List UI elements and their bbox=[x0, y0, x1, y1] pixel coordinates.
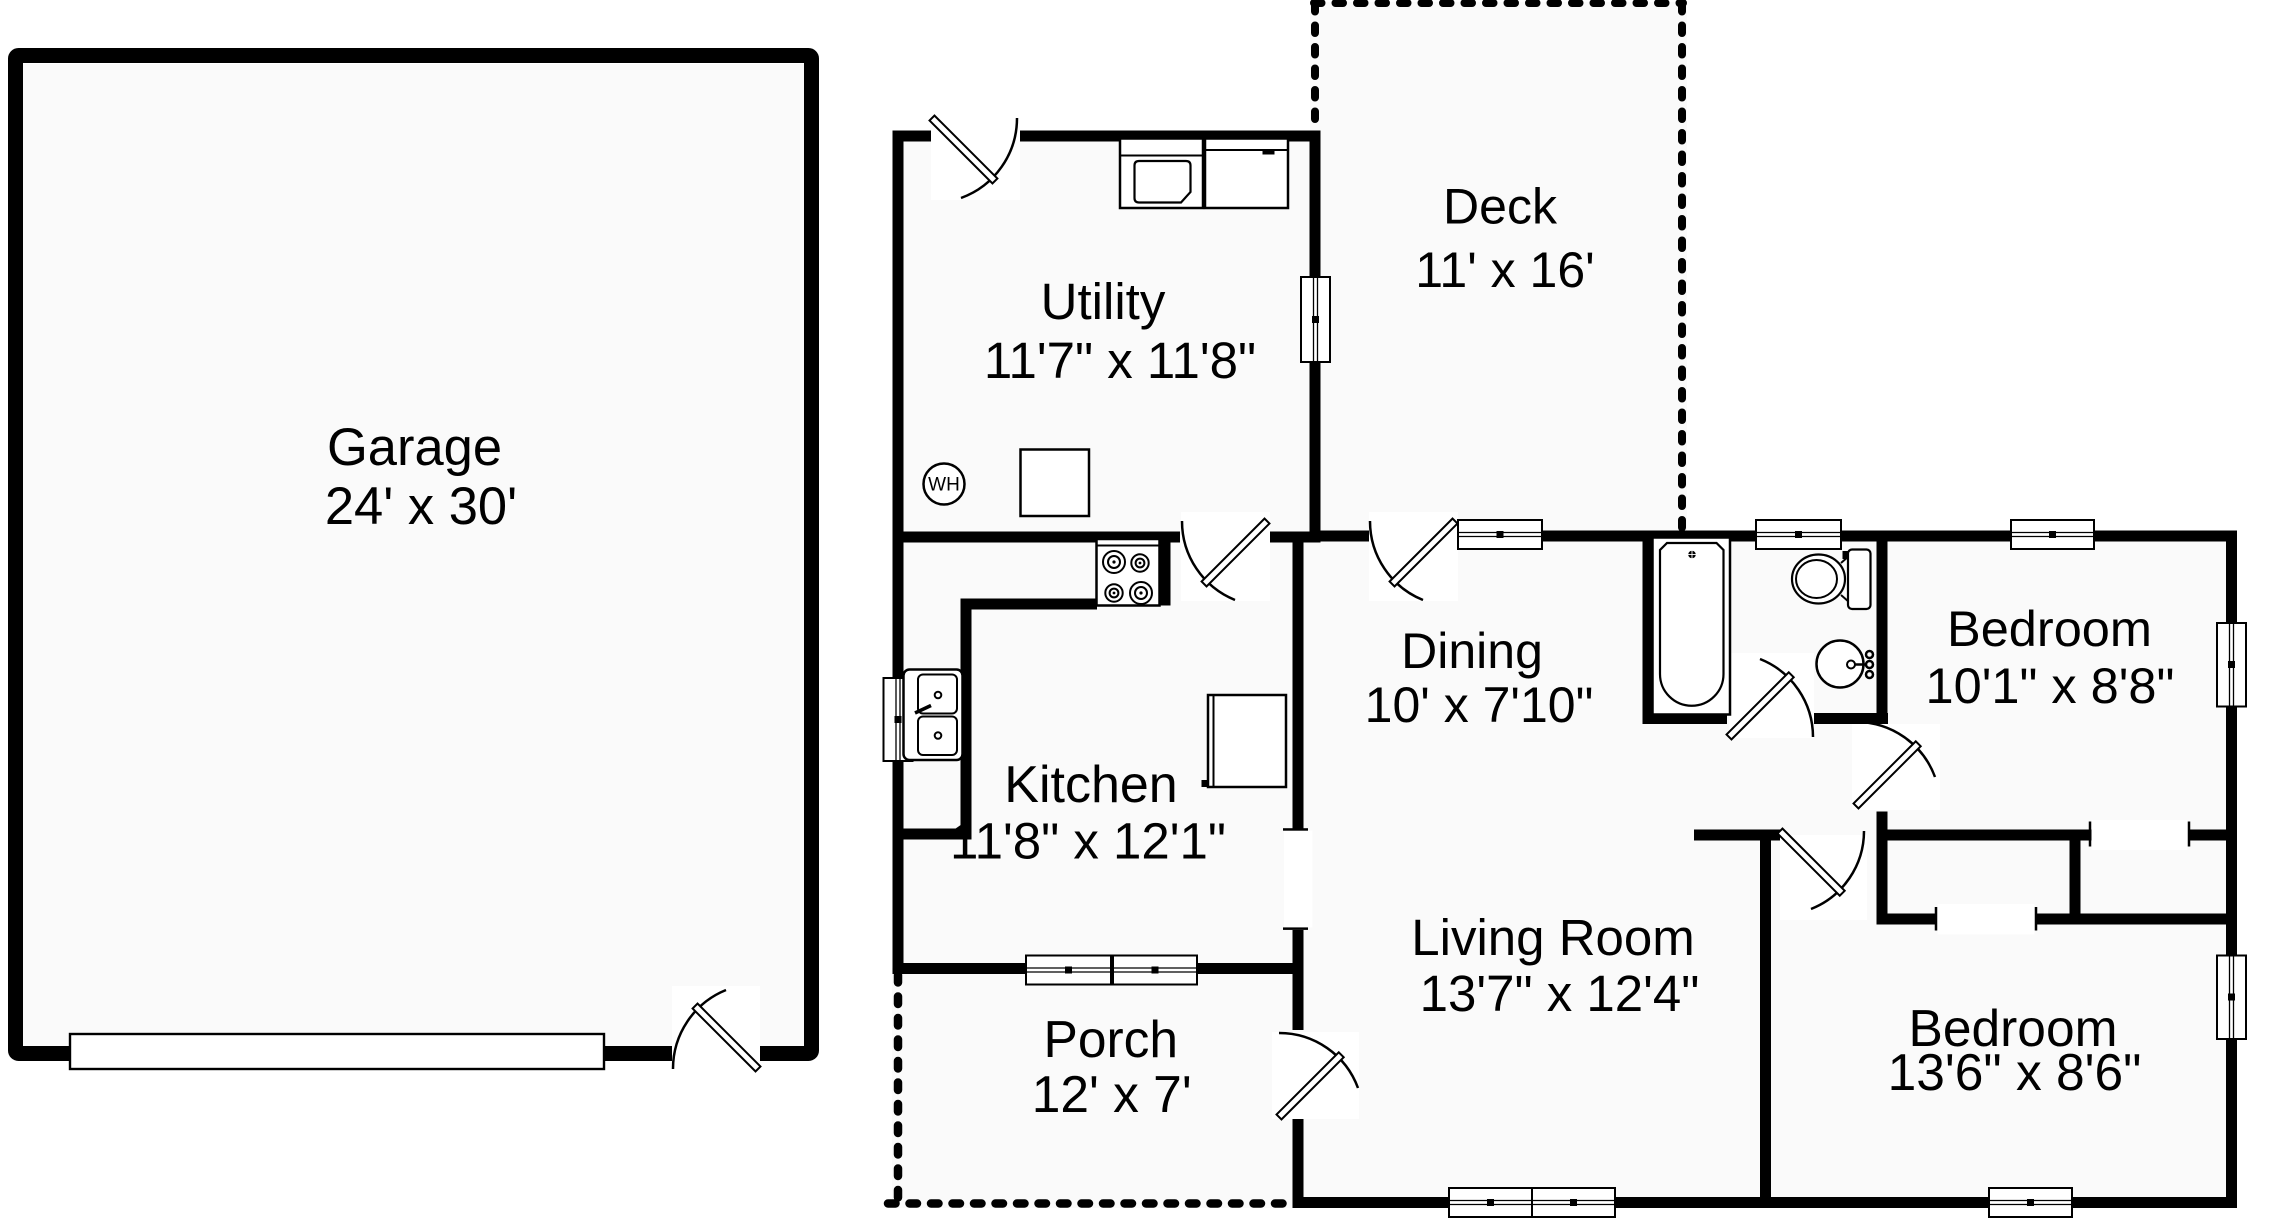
svg-text:10' x 7'10": 10' x 7'10" bbox=[1365, 677, 1594, 733]
svg-text:11'8" x 12'1": 11'8" x 12'1" bbox=[950, 813, 1226, 870]
svg-text:11'7" x 11'8": 11'7" x 11'8" bbox=[984, 332, 1256, 389]
svg-text:Bedroom: Bedroom bbox=[1947, 600, 2152, 657]
svg-text:Dining: Dining bbox=[1401, 623, 1543, 679]
svg-text:24' x 30': 24' x 30' bbox=[325, 477, 517, 536]
svg-text:Living Room: Living Room bbox=[1411, 909, 1694, 966]
svg-text:13'7" x 12'4": 13'7" x 12'4" bbox=[1420, 965, 1700, 1022]
svg-text:11' x 16': 11' x 16' bbox=[1415, 242, 1594, 298]
svg-text:12' x 7': 12' x 7' bbox=[1032, 1065, 1192, 1123]
svg-text:Porch: Porch bbox=[1044, 1010, 1179, 1068]
svg-text:Deck: Deck bbox=[1443, 179, 1558, 235]
svg-text:Kitchen: Kitchen bbox=[1004, 756, 1177, 814]
svg-text:Garage: Garage bbox=[327, 418, 502, 477]
svg-text:Utility: Utility bbox=[1041, 273, 1166, 330]
svg-text:13'6" x 8'6": 13'6" x 8'6" bbox=[1888, 1043, 2142, 1101]
svg-text:10'1" x 8'8": 10'1" x 8'8" bbox=[1926, 657, 2175, 714]
svg-text:WH: WH bbox=[928, 475, 960, 496]
